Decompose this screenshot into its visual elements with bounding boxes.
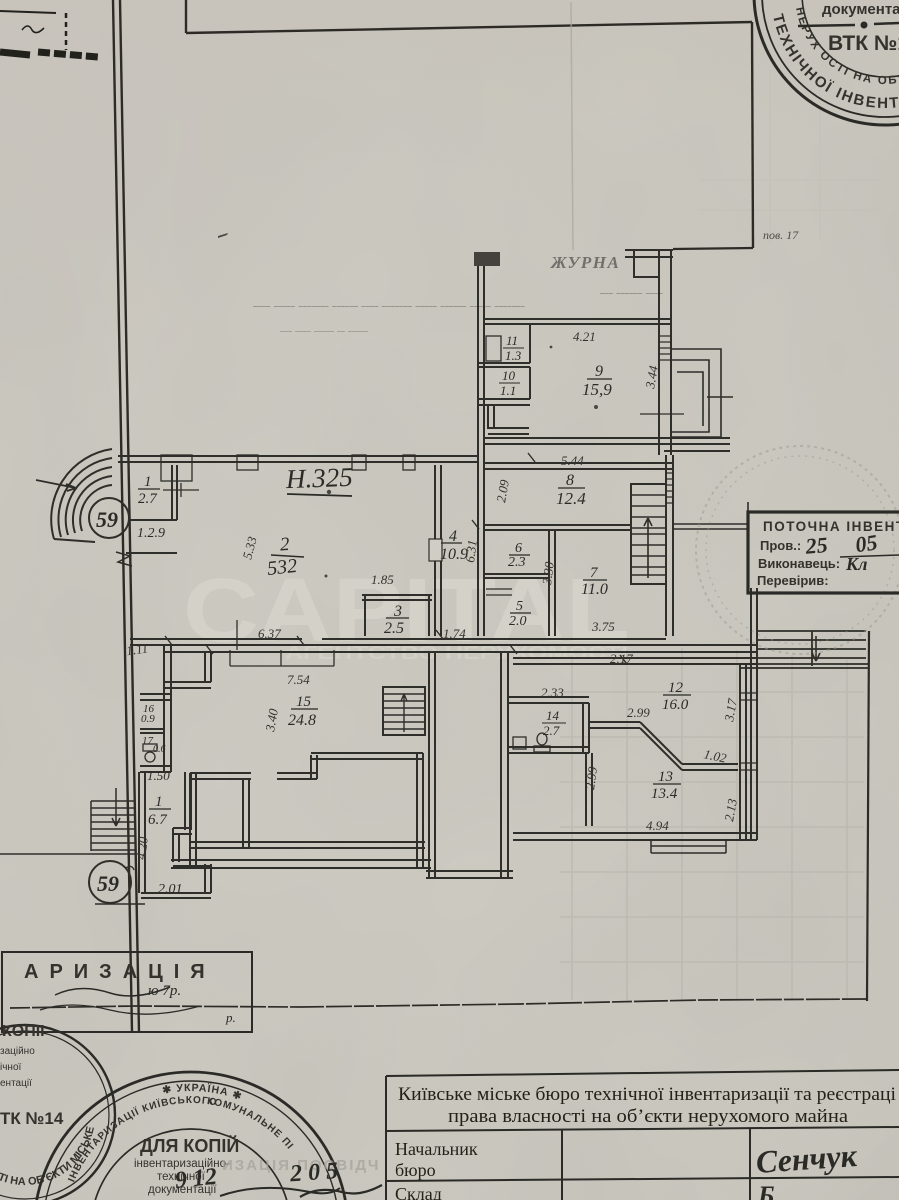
svg-text:5.44: 5.44 xyxy=(561,453,584,468)
svg-text:АРИЗАЦІЯ: АРИЗАЦІЯ xyxy=(24,961,216,983)
svg-text:р.: р. xyxy=(225,1010,236,1025)
svg-text:КОПІІ: КОПІІ xyxy=(2,1023,45,1040)
svg-text:24.8: 24.8 xyxy=(288,712,316,729)
svg-text:25: 25 xyxy=(804,532,829,559)
svg-text:Склад: Склад xyxy=(395,1184,442,1200)
svg-text:ічної: ічної xyxy=(0,1062,22,1073)
svg-text:4.94: 4.94 xyxy=(646,818,669,833)
svg-text:1.50: 1.50 xyxy=(147,768,170,783)
svg-text:6: 6 xyxy=(515,541,522,556)
svg-text:0.9: 0.9 xyxy=(141,713,155,725)
svg-text:13: 13 xyxy=(658,769,673,785)
svg-text:2.99: 2.99 xyxy=(582,765,600,790)
svg-text:2.7: 2.7 xyxy=(138,491,158,507)
svg-text:59: 59 xyxy=(97,871,119,896)
svg-text:16.0: 16.0 xyxy=(662,697,689,713)
svg-text:документа: документа xyxy=(822,1,899,18)
svg-text:пов. 17: пов. 17 xyxy=(763,228,799,242)
svg-text:8: 8 xyxy=(566,472,574,489)
svg-text:Виконавець:: Виконавець: xyxy=(758,556,840,571)
svg-text:3.30: 3.30 xyxy=(539,560,557,586)
svg-text:2 0 5: 2 0 5 xyxy=(288,1158,339,1187)
svg-text:ДЛЯ КОПІЙ: ДЛЯ КОПІЙ xyxy=(140,1135,239,1156)
svg-text:Київське міське бюро технічної: Київське міське бюро технічної інвентари… xyxy=(398,1085,896,1105)
svg-text:4.20: 4.20 xyxy=(133,835,151,860)
svg-text:1: 1 xyxy=(144,474,152,490)
svg-text:9 12: 9 12 xyxy=(174,1164,218,1194)
svg-text:ВТК №1: ВТК №1 xyxy=(828,32,899,55)
svg-text:1.2.9: 1.2.9 xyxy=(137,526,165,541)
svg-text:Н.325: Н.325 xyxy=(284,462,353,494)
svg-text:11: 11 xyxy=(506,333,518,348)
svg-text:Начальник: Начальник xyxy=(395,1139,478,1159)
svg-text:4.21: 4.21 xyxy=(573,329,596,344)
svg-text:12: 12 xyxy=(668,680,684,696)
svg-text:2.3: 2.3 xyxy=(508,555,526,570)
svg-text:5: 5 xyxy=(516,599,523,614)
svg-text:2.33: 2.33 xyxy=(541,685,564,700)
svg-text:05: 05 xyxy=(854,529,879,557)
svg-text:права власності на об’єкти не: права власності на об’єкти нерухомого ма… xyxy=(448,1107,848,1127)
svg-text:12.4: 12.4 xyxy=(556,489,586,508)
svg-text:Перевірив:: Перевірив: xyxy=(757,573,829,588)
svg-text:10: 10 xyxy=(502,368,516,383)
svg-text:11.0: 11.0 xyxy=(581,581,608,598)
svg-text:2.7: 2.7 xyxy=(543,723,560,738)
svg-text:ПОТОЧНА ІНВЕНТА: ПОТОЧНА ІНВЕНТА xyxy=(763,519,899,534)
svg-text:1.1: 1.1 xyxy=(500,383,516,398)
svg-text:1.3: 1.3 xyxy=(505,348,522,363)
svg-text:13.4: 13.4 xyxy=(651,786,678,802)
svg-text:9: 9 xyxy=(595,363,603,380)
svg-text:17: 17 xyxy=(142,735,154,747)
svg-text:ю 7р.: ю 7р. xyxy=(148,983,181,999)
svg-text:1.11: 1.11 xyxy=(125,640,149,658)
svg-text:заційно: заційно xyxy=(0,1046,35,1057)
svg-text:бюро: бюро xyxy=(395,1160,436,1180)
svg-text:2.17: 2.17 xyxy=(610,651,633,666)
svg-text:1: 1 xyxy=(155,794,163,810)
svg-text:15: 15 xyxy=(296,694,312,710)
svg-text:14: 14 xyxy=(546,708,560,723)
svg-text:3.75: 3.75 xyxy=(591,619,615,634)
svg-text:15,9: 15,9 xyxy=(582,380,612,399)
svg-text:2.99: 2.99 xyxy=(627,705,650,720)
svg-text:ˍˍˍ ˍˍˍˍˍˍ ˍˍˍˍ: ˍˍˍ ˍˍˍˍˍˍ ˍˍˍˍ xyxy=(600,280,663,295)
svg-text:0.6: 0.6 xyxy=(153,744,166,755)
svg-text:ТК №14: ТК №14 xyxy=(0,1109,64,1128)
svg-text:2.0: 2.0 xyxy=(509,614,527,629)
svg-text:Кл: Кл xyxy=(845,554,867,574)
svg-text:6.31: 6.31 xyxy=(462,539,480,563)
svg-text:1.85: 1.85 xyxy=(371,572,394,587)
svg-text:2.5: 2.5 xyxy=(384,620,404,637)
svg-text:ˍˍˍ ˍˍˍˍ ˍˍˍˍˍ ˍˍ: ˍˍˍ ˍˍˍˍ ˍˍˍˍˍ ˍˍ ˍˍˍˍˍ xyxy=(280,319,368,333)
svg-text:6.7: 6.7 xyxy=(148,812,168,828)
svg-text:ентації: ентації xyxy=(0,1078,32,1089)
svg-text:1.74: 1.74 xyxy=(443,626,466,641)
svg-text:2.01: 2.01 xyxy=(158,882,183,897)
svg-text:ЖУРНА: ЖУРНА xyxy=(550,253,620,272)
svg-text:532: 532 xyxy=(266,555,298,580)
svg-text:7.54: 7.54 xyxy=(287,672,310,687)
svg-text:Пров.:: Пров.: xyxy=(760,538,801,553)
svg-text:Б: Б xyxy=(757,1181,775,1200)
svg-text:59: 59 xyxy=(96,507,118,532)
svg-text:Сенчук: Сенчук xyxy=(755,1137,859,1180)
svg-text:6.37: 6.37 xyxy=(258,626,281,641)
